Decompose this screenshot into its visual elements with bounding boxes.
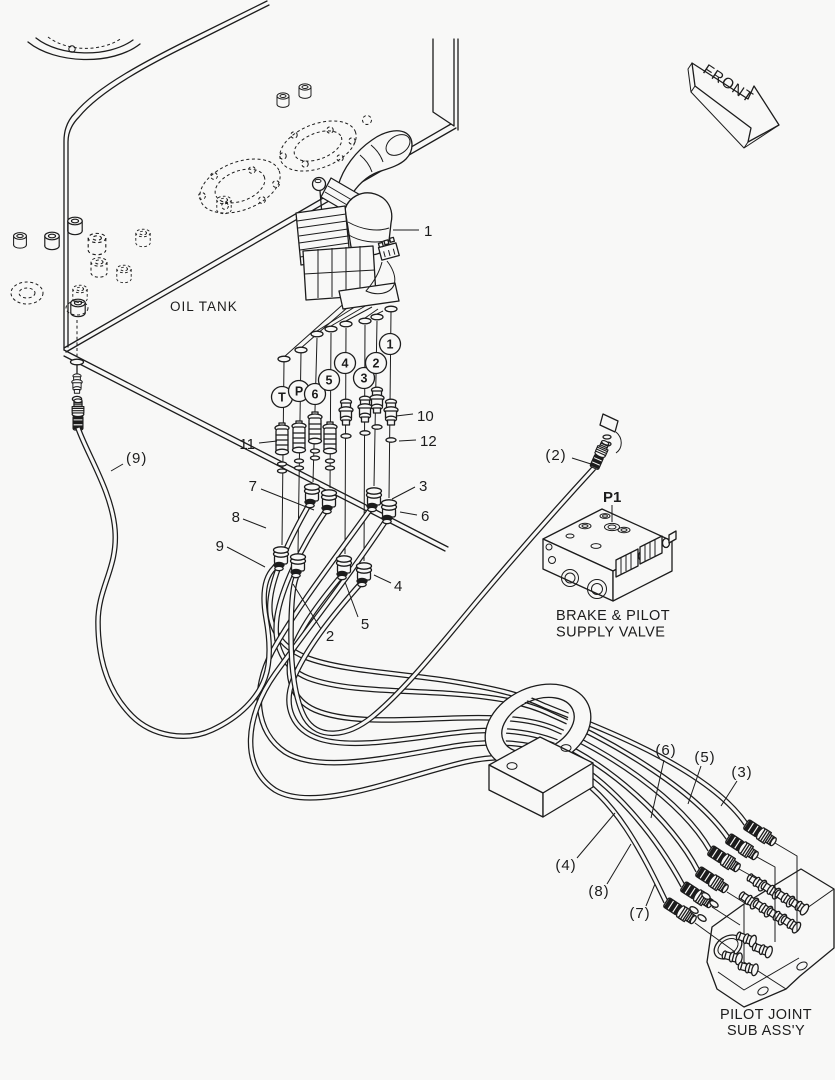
port-p: P <box>295 385 303 399</box>
port-2: 2 <box>373 357 380 371</box>
oil-tank-label: OIL TANK <box>170 299 238 314</box>
callout-12: 12 <box>420 433 437 450</box>
hose-callout-6: (6) <box>655 742 676 759</box>
callout-10: 10 <box>417 408 434 425</box>
callout-1: 1 <box>424 223 432 240</box>
hose-callout-9: (9) <box>126 450 147 467</box>
parts-diagram-page: OIL TANK FRONT <box>0 0 835 1080</box>
callout-3: 3 <box>419 478 427 495</box>
valve-label-line1: BRAKE & PILOT <box>556 608 670 624</box>
hose-callout-8: (8) <box>588 883 609 900</box>
port-3: 3 <box>361 372 368 386</box>
hose-callout-4: (4) <box>555 857 576 874</box>
callout-8: 8 <box>232 509 240 526</box>
port-5: 5 <box>326 374 333 388</box>
hose-callout-2: (2) <box>545 447 566 464</box>
port-t: T <box>278 391 286 405</box>
hose-callout-5: (5) <box>694 749 715 766</box>
callout-2: 2 <box>326 628 334 645</box>
hose-callout-7: (7) <box>629 905 650 922</box>
diagram-canvas: OIL TANK FRONT <box>0 0 835 1080</box>
callout-5: 5 <box>361 616 369 633</box>
p1-port-label: P1 <box>603 489 621 506</box>
callout-4: 4 <box>394 578 402 595</box>
pilot-joint-label-line1: PILOT JOINT <box>720 1007 812 1023</box>
port-6: 6 <box>312 388 319 402</box>
valve-label-line2: SUPPLY VALVE <box>556 625 665 641</box>
port-1: 1 <box>387 338 394 352</box>
port-4: 4 <box>342 357 349 371</box>
background <box>0 0 835 1080</box>
callout-6: 6 <box>421 508 429 525</box>
hose-callout-3: (3) <box>731 764 752 781</box>
pilot-joint-label-line2: SUB ASS'Y <box>727 1023 805 1039</box>
callout-11: 11 <box>239 436 255 453</box>
callout-7: 7 <box>249 478 257 495</box>
callout-9: 9 <box>216 538 224 555</box>
